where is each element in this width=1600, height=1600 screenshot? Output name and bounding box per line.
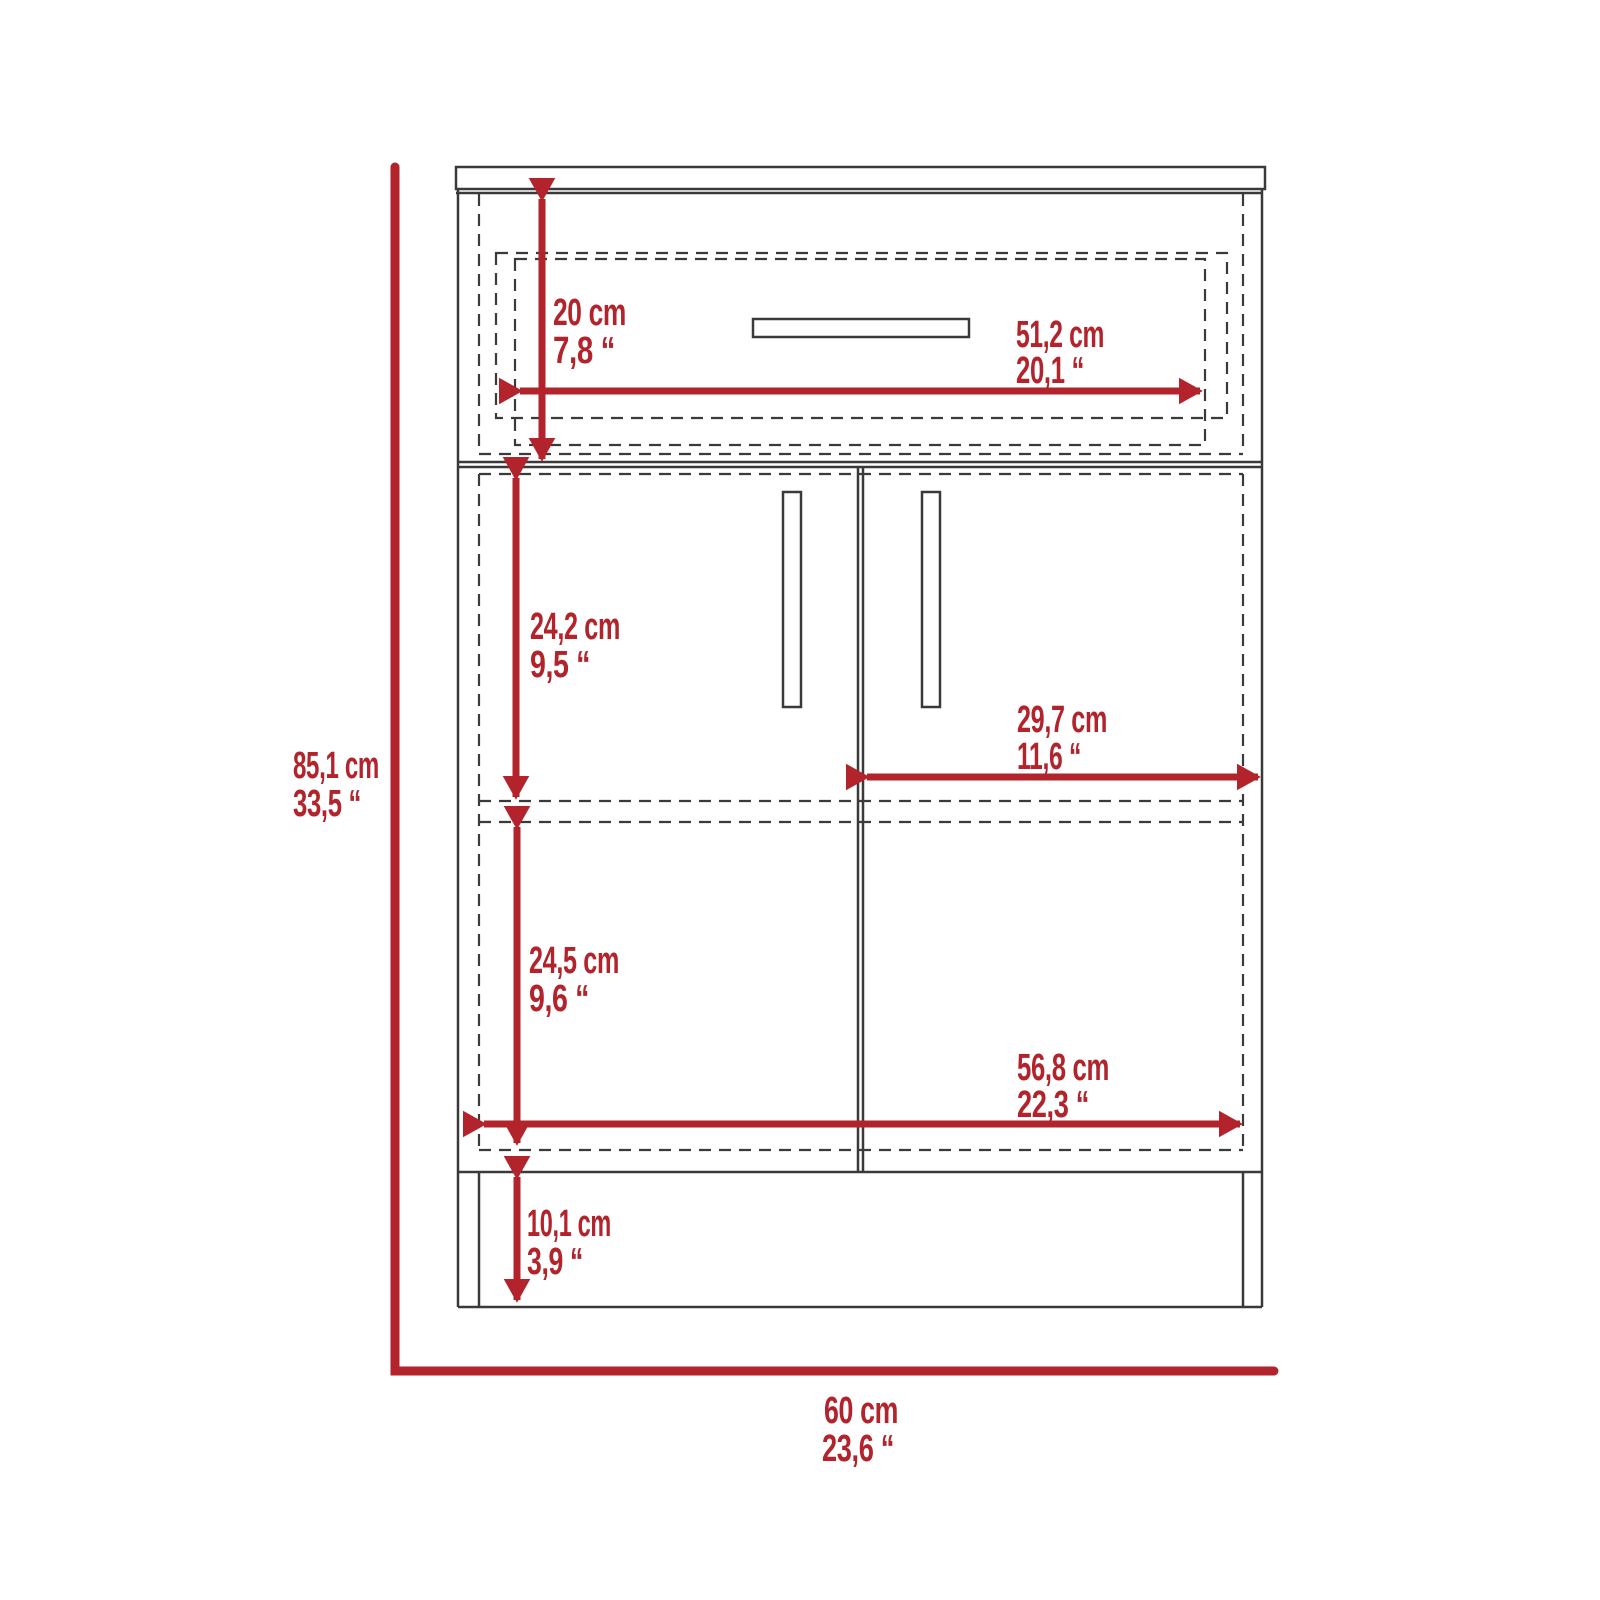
interior-width-cm: 56,8 cm bbox=[1017, 1047, 1109, 1089]
overall-height-cm: 85,1 cm bbox=[293, 745, 379, 787]
overall-height-width-line bbox=[395, 167, 1274, 1371]
lower-compartment-height-cm: 24,5 cm bbox=[529, 940, 619, 982]
right-door-handle bbox=[922, 492, 940, 707]
upper-compartment-height-label: 24,2 cm 9,5 “ bbox=[530, 606, 620, 686]
cabinet-top-panel bbox=[456, 167, 1265, 189]
interior-width-in: 22,3 “ bbox=[1017, 1084, 1089, 1126]
right-door-width-label: 29,7 cm 11,6 “ bbox=[1017, 699, 1107, 778]
drawer-handle bbox=[753, 319, 969, 337]
lower-compartment-height-in: 9,6 “ bbox=[529, 978, 589, 1020]
upper-compartment-height-in: 9,5 “ bbox=[530, 644, 590, 686]
right-door-width-cm: 29,7 cm bbox=[1017, 699, 1107, 741]
dimension-diagram-page: 20 cm 7,8 “ 51,2 cm 20,1 “ 24,2 cm 9,5 “… bbox=[0, 0, 1600, 1600]
right-door-width-in: 11,6 “ bbox=[1017, 736, 1081, 778]
drawer-width-label: 51,2 cm 20,1 “ bbox=[1016, 314, 1104, 392]
drawer-width-in: 20,1 “ bbox=[1016, 350, 1084, 392]
drawer-height-label: 20 cm 7,8 “ bbox=[553, 292, 626, 372]
dimension-labels: 20 cm 7,8 “ 51,2 cm 20,1 “ 24,2 cm 9,5 “… bbox=[293, 292, 1109, 1470]
overall-width-in: 23,6 “ bbox=[822, 1428, 894, 1470]
overall-height-in: 33,5 “ bbox=[293, 783, 361, 825]
base-height-in: 3,9 “ bbox=[527, 1241, 583, 1283]
base-height-label: 10,1 cm 3,9 “ bbox=[527, 1203, 611, 1283]
upper-compartment-height-cm: 24,2 cm bbox=[530, 606, 620, 648]
drawer-height-cm: 20 cm bbox=[553, 292, 626, 334]
left-door-handle bbox=[783, 492, 801, 707]
overall-height-label: 85,1 cm 33,5 “ bbox=[293, 745, 379, 825]
drawer-height-in: 7,8 “ bbox=[553, 330, 615, 372]
lower-compartment-height-label: 24,5 cm 9,6 “ bbox=[529, 940, 619, 1020]
interior-width-label: 56,8 cm 22,3 “ bbox=[1017, 1047, 1109, 1126]
overall-dimension-lines bbox=[395, 167, 1274, 1371]
overall-width-label: 60 cm 23,6 “ bbox=[822, 1390, 898, 1470]
overall-width-cm: 60 cm bbox=[824, 1390, 898, 1432]
base-height-cm: 10,1 cm bbox=[527, 1203, 611, 1245]
cabinet-dimension-diagram: 20 cm 7,8 “ 51,2 cm 20,1 “ 24,2 cm 9,5 “… bbox=[0, 0, 1600, 1600]
